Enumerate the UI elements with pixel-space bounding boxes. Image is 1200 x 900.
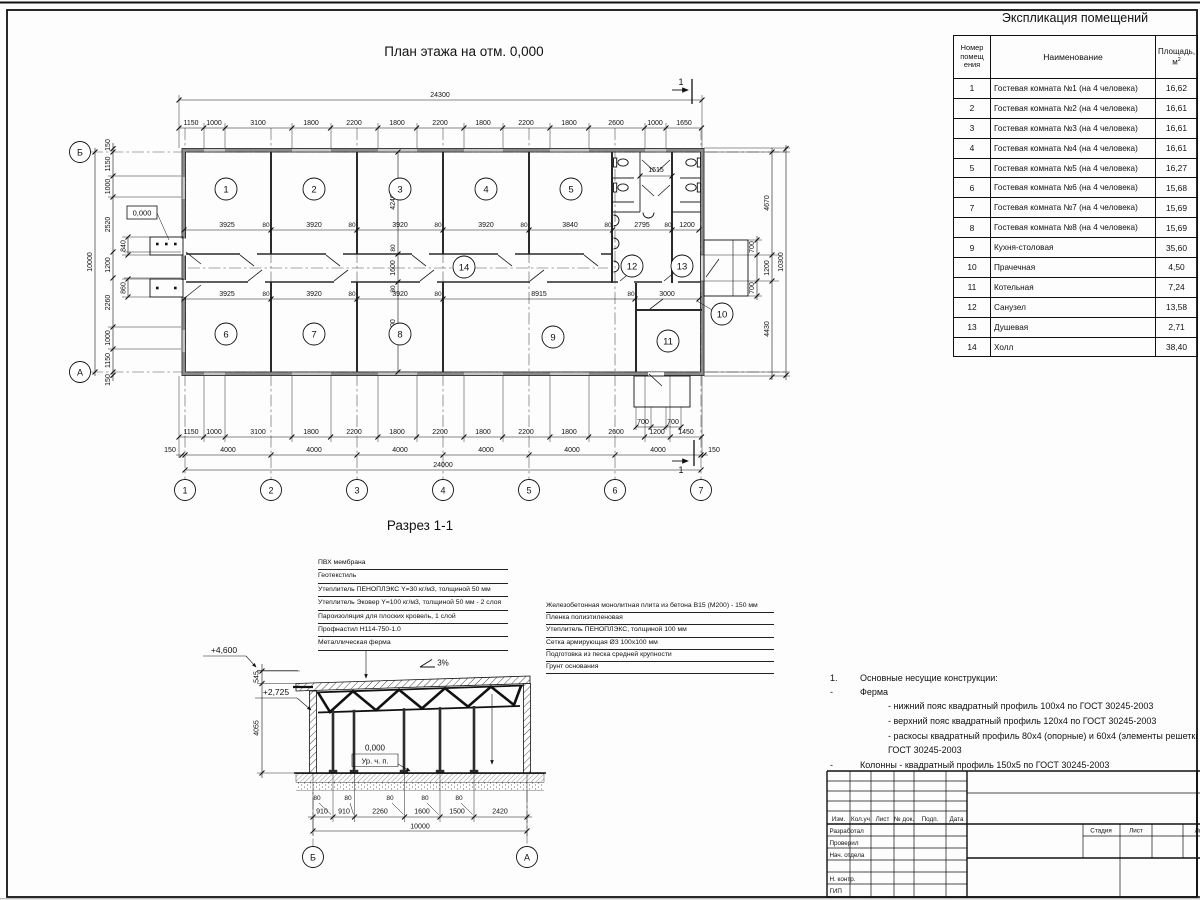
- dim: 1000: [647, 120, 663, 127]
- dimension-ticks: [93, 98, 789, 473]
- dim: 1515: [648, 167, 664, 174]
- dim: 2200: [432, 429, 448, 436]
- titleblock-col: Лист: [876, 816, 890, 823]
- titleblock-col: Дата: [950, 816, 964, 823]
- table-row: 5Гостевая комната №5 (на 4 человека)16,2…: [954, 158, 1198, 178]
- dim: 1200: [649, 429, 665, 436]
- axis-label: А: [524, 853, 530, 863]
- dim: 1800: [389, 120, 405, 127]
- dim: 860: [121, 282, 128, 294]
- explication-header: Номер помещ ения Наименование Площадь, м…: [954, 36, 1198, 79]
- dim: 80: [664, 222, 672, 229]
- dim: 700: [749, 241, 756, 253]
- dim: 80: [262, 222, 270, 229]
- note-line: -Ферма: [830, 685, 1197, 699]
- callout-row: Утеплитель ПЕНОПЛЭКС Y=30 кг/м3, толщино…: [318, 584, 508, 597]
- dim: 3920: [392, 222, 408, 229]
- room-number: 9: [550, 333, 555, 344]
- elevation-label: 0,000: [133, 209, 152, 218]
- dim: 4430: [764, 321, 771, 337]
- room-number: 2: [311, 185, 316, 196]
- col-header-area: Площадь, м2: [1156, 36, 1198, 79]
- room-number: 4: [483, 185, 488, 196]
- section-title: Разрез 1-1: [330, 518, 510, 533]
- dim: 910: [316, 809, 328, 816]
- dim: 1150: [183, 429, 198, 436]
- table-row: 6Гостевая комната №6 (на 4 человека)15,6…: [954, 178, 1198, 198]
- table-row: 2Гостевая комната №2 (на 4 человека)16,6…: [954, 98, 1198, 118]
- titleblock-col: Кол.уч: [851, 816, 870, 823]
- section-mark-label: 1: [678, 465, 683, 475]
- plan-fixtures: [614, 158, 701, 272]
- note-line: -Колонны - квадратный профиль 150х5 по Г…: [830, 758, 1197, 772]
- dim: 2200: [346, 429, 362, 436]
- section-mark-label: 1: [678, 77, 683, 87]
- dim: 3925: [219, 291, 235, 298]
- plan-room-numbers: [215, 178, 733, 352]
- callout-row: Подготовка из песка средней крупности: [546, 650, 774, 662]
- dim: 1200: [105, 257, 112, 273]
- dim: 2200: [518, 120, 534, 127]
- dim: 10000: [410, 824, 430, 831]
- elevation-value: +2,725: [263, 687, 290, 697]
- dim: 1150: [105, 156, 112, 171]
- table-row: 3Гостевая комната №3 (на 4 человека)16,6…: [954, 118, 1198, 138]
- dim: 24300: [430, 92, 450, 99]
- dim: 1200: [679, 222, 695, 229]
- axis-label: А: [77, 368, 83, 378]
- note-line: - нижний пояс квадратный профиль 100х4 п…: [830, 699, 1197, 714]
- dim: 3920: [306, 291, 322, 298]
- section-axis-bubbles: [303, 847, 538, 868]
- callout-row: Пароизоляция для плоских кровель, 1 слой: [318, 611, 508, 624]
- dim: 1650: [676, 120, 692, 127]
- dim: 2600: [608, 429, 624, 436]
- dim: 1800: [475, 429, 491, 436]
- dim: 4000: [564, 447, 580, 454]
- dim: 80: [520, 222, 528, 229]
- porch-dots: [156, 243, 177, 290]
- dim: 150: [164, 447, 176, 454]
- dim: 4670: [764, 195, 771, 211]
- section-elevation-marks: [203, 656, 435, 771]
- table-row: 14Холл38,40: [954, 337, 1198, 357]
- callout-row: Железобетонная монолитная плита из бетон…: [546, 601, 774, 613]
- room-number: 6: [223, 330, 228, 341]
- axis-label: Б: [77, 148, 83, 158]
- dim: 700: [749, 282, 756, 294]
- note-line: ГОСТ 30245-2003: [830, 743, 1197, 758]
- dim: 2795: [634, 222, 650, 229]
- room-number: 10: [717, 310, 728, 321]
- dim: 1200: [764, 260, 771, 276]
- titleblock-row: Проверил: [830, 840, 859, 847]
- callout-row: Профнастил Н114-750-1.0: [318, 624, 508, 637]
- structural-notes: 1.Основные несущие конструкции: -Ферма -…: [830, 671, 1197, 772]
- room-number: 13: [677, 262, 688, 273]
- dim: 1600: [390, 260, 397, 276]
- dim: 4000: [306, 447, 322, 454]
- room-number: 3: [397, 185, 402, 196]
- col-header-name: Наименование: [991, 36, 1156, 79]
- dim: 3100: [250, 429, 266, 436]
- callout-row: ПВХ мембрана: [318, 557, 508, 570]
- callout-row: Утеплитель Эковер Y=100 кг/м3, толщиной …: [318, 597, 508, 610]
- room-number: 7: [311, 330, 316, 341]
- table-row: 8Гостевая комната №8 (на 4 человека)15,6…: [954, 218, 1198, 238]
- dim: 80: [348, 222, 356, 229]
- callout-row: Сетка армирующая Ø3 100х100 мм: [546, 638, 774, 650]
- roof-layers-callout: ПВХ мембрана Геотекстиль Утеплитель ПЕНО…: [318, 557, 508, 651]
- plan-title: План этажа на отм. 0,000: [329, 44, 599, 59]
- titleblock-col: Изм.: [832, 816, 846, 823]
- dim: 4000: [650, 447, 666, 454]
- dim: 24000: [433, 462, 453, 469]
- callout-row: Утеплитель ПЕНОПЛЭКС, толщиной 100 мм: [546, 625, 774, 637]
- dim: 910: [338, 809, 350, 816]
- drawing-sheet: 24300 1150 1000 3100 1800 2200 1800 2200…: [0, 0, 1200, 900]
- dim: 2200: [432, 120, 448, 127]
- dim: 3920: [478, 222, 494, 229]
- dim: 4055: [254, 720, 261, 736]
- dim: 80: [421, 795, 429, 802]
- elevation-value: +4,600: [211, 645, 238, 655]
- room-number: 5: [568, 185, 573, 196]
- room-number: 14: [459, 263, 470, 274]
- dim: 2260: [372, 809, 388, 816]
- axis-label: 4: [440, 486, 445, 496]
- titleblock-col: Стадия: [1090, 828, 1111, 835]
- dim: 545: [254, 671, 261, 683]
- axis-label: 1: [182, 486, 187, 496]
- section-labels: +4,600 +2,725 0,000 Ур. ч. п. 3% 545 405…: [211, 645, 508, 831]
- axis-label: 3: [354, 486, 359, 496]
- dim: 80: [390, 285, 397, 293]
- dim: 1150: [105, 353, 112, 368]
- callout-row: Пленка полиэтиленовая: [546, 613, 774, 625]
- dim: 1800: [475, 120, 491, 127]
- dim: 2420: [492, 809, 508, 816]
- table-row: 4Гостевая комната №4 (на 4 человека)16,6…: [954, 138, 1198, 158]
- dim: 4000: [220, 447, 236, 454]
- dim: 1500: [449, 809, 465, 816]
- dim: 4000: [478, 447, 494, 454]
- dim: 1150: [183, 120, 198, 127]
- dim: 150: [105, 374, 112, 386]
- axis-label: Б: [310, 853, 316, 863]
- dim: 80: [455, 795, 463, 802]
- dim: 8915: [531, 291, 547, 298]
- section-wall-left: [310, 691, 317, 773]
- dim: 3840: [562, 222, 578, 229]
- section-floor: [294, 773, 546, 791]
- titleblock-row: Н. контр.: [830, 876, 856, 883]
- dim: 2520: [105, 217, 112, 233]
- dim: 10000: [87, 252, 94, 272]
- dim: 3100: [250, 120, 266, 127]
- dim: 1000: [105, 330, 112, 346]
- dim: 700: [667, 419, 679, 426]
- table-row: 10Прачечная4,50: [954, 258, 1198, 278]
- dim: 1800: [303, 429, 319, 436]
- axis-label: 2: [268, 486, 273, 496]
- titleblock-col: Лист: [1129, 828, 1143, 835]
- dim: 150: [105, 139, 112, 151]
- dim: 80: [313, 795, 321, 802]
- dim: 2600: [608, 120, 624, 127]
- elevation-value: 0,000: [365, 744, 386, 753]
- titleblock-row: Нач. отдела: [830, 852, 865, 859]
- table-row: 11Котельная7,24: [954, 277, 1198, 297]
- floor-layers-callout: Железобетонная монолитная плита из бетон…: [546, 601, 774, 674]
- dim: 2260: [105, 295, 112, 311]
- dim: 840: [121, 240, 128, 252]
- dim: 80: [262, 291, 270, 298]
- dim: 80: [627, 291, 635, 298]
- dim: 1800: [561, 429, 577, 436]
- note-line: - раскосы квадратный профиль 80х4 (опорн…: [830, 729, 1197, 744]
- dim: 3920: [306, 222, 322, 229]
- dim: 3925: [219, 222, 235, 229]
- dim: 700: [637, 419, 649, 426]
- explication-title: Экспликация помещений: [953, 11, 1197, 25]
- title-block: Изм. Кол.уч Лист № док. Подп. Дата Стади…: [827, 771, 1200, 897]
- dim: 80: [434, 222, 442, 229]
- note-line: 1.Основные несущие конструкции:: [830, 671, 1197, 685]
- axis-label: 5: [526, 486, 531, 496]
- titleblock-row: Разработал: [830, 827, 865, 835]
- floor-level-label: Ур. ч. п.: [362, 757, 389, 766]
- axis-label: 6: [612, 486, 617, 496]
- section-drawing: +4,600 +2,725 0,000 Ур. ч. п. 3% 545 405…: [203, 645, 546, 868]
- dim: 1000: [206, 429, 222, 436]
- dim: 1800: [389, 429, 405, 436]
- dim: 1000: [105, 179, 112, 195]
- plan-porches: [127, 206, 748, 407]
- dim: 80: [434, 291, 442, 298]
- dim: 2200: [346, 120, 362, 127]
- dim: 80: [348, 291, 356, 298]
- table-row: 1Гостевая комната №1 (на 4 человека)16,6…: [954, 79, 1198, 99]
- table-row: 13Душевая2,71: [954, 317, 1198, 337]
- titleblock-col: Листов: [1195, 828, 1200, 835]
- room-number: 8: [397, 330, 402, 341]
- axis-label: 7: [698, 486, 703, 496]
- callout-row: Геотекстиль: [318, 570, 508, 583]
- room-number: 1: [223, 185, 228, 196]
- dim: 1800: [303, 120, 319, 127]
- room-number: 11: [663, 337, 673, 348]
- dim: 80: [604, 222, 612, 229]
- explication-table: Номер помещ ения Наименование Площадь, м…: [953, 35, 1198, 357]
- dim: 1450: [678, 429, 694, 436]
- dim: 10300: [778, 252, 785, 272]
- dim: 4000: [392, 447, 408, 454]
- callout-row: Металлическая ферма: [318, 637, 508, 650]
- dim: 1800: [561, 120, 577, 127]
- slope-label: 3%: [437, 659, 449, 668]
- note-line: - верхний пояс квадратный профиль 120х4 …: [830, 714, 1197, 729]
- dim: 80: [386, 795, 394, 802]
- dim: 150: [708, 447, 720, 454]
- room-number: 12: [627, 262, 638, 273]
- dim: 80: [344, 795, 352, 802]
- titleblock-row: ГИП: [830, 888, 843, 895]
- titleblock-col: № док.: [894, 816, 914, 823]
- table-row: 12Санузел13,58: [954, 297, 1198, 317]
- table-row: 7Гостевая комната №7 (на 4 человека)15,6…: [954, 198, 1198, 218]
- dim: 80: [390, 244, 397, 252]
- callout-row: Грунт основания: [546, 662, 774, 674]
- floor-plan: 24300 1150 1000 3100 1800 2200 1800 2200…: [70, 77, 791, 501]
- dim: 2200: [518, 429, 534, 436]
- titleblock-col: Подп.: [922, 816, 939, 823]
- section-wall-right: [524, 684, 531, 774]
- table-row: 9Кухня-столовая35,60: [954, 238, 1198, 258]
- dim: 1600: [414, 809, 430, 816]
- dim: 3000: [659, 291, 675, 298]
- dim: 1000: [206, 120, 222, 127]
- section-columns: [329, 706, 479, 773]
